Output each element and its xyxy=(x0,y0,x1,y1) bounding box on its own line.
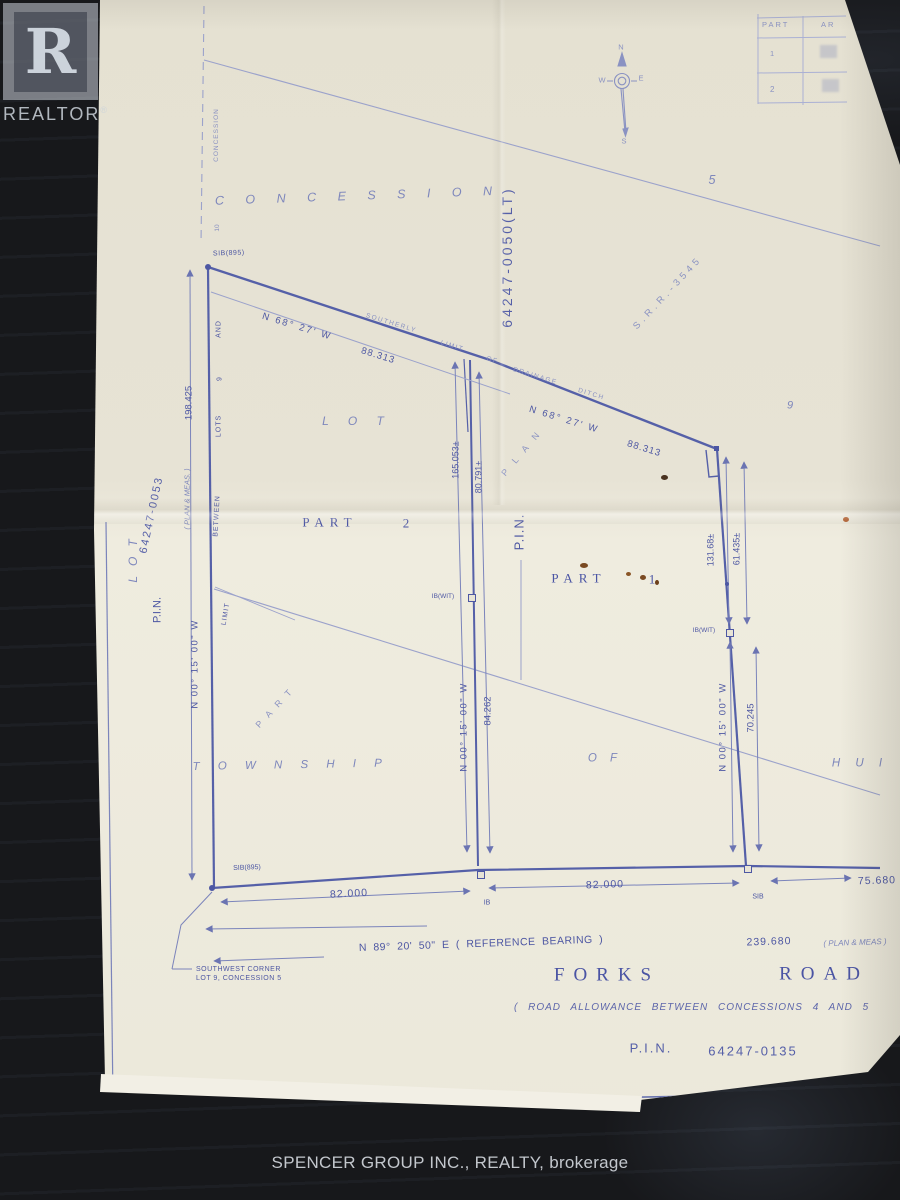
photo-of-survey-plan: PART AR 1 2 N W E S CONCESSION 10 C O N … xyxy=(0,0,900,1200)
realtor-logo-frame: R xyxy=(3,3,98,100)
realtor-wordmark: REALTOR® xyxy=(3,104,100,125)
survey-plan-paper: PART AR 1 2 N W E S CONCESSION 10 C O N … xyxy=(0,0,900,1200)
realtor-logo-square: R xyxy=(14,12,87,92)
paper-edge-shading xyxy=(0,0,900,1200)
brokerage-watermark: SPENCER GROUP INC., REALTY, brokerage xyxy=(272,1153,629,1173)
registered-symbol: ® xyxy=(100,105,109,115)
realtor-watermark: R REALTOR® xyxy=(3,3,100,125)
realtor-wordmark-text: REALTOR xyxy=(3,104,100,124)
realtor-r-glyph: R xyxy=(25,21,77,83)
